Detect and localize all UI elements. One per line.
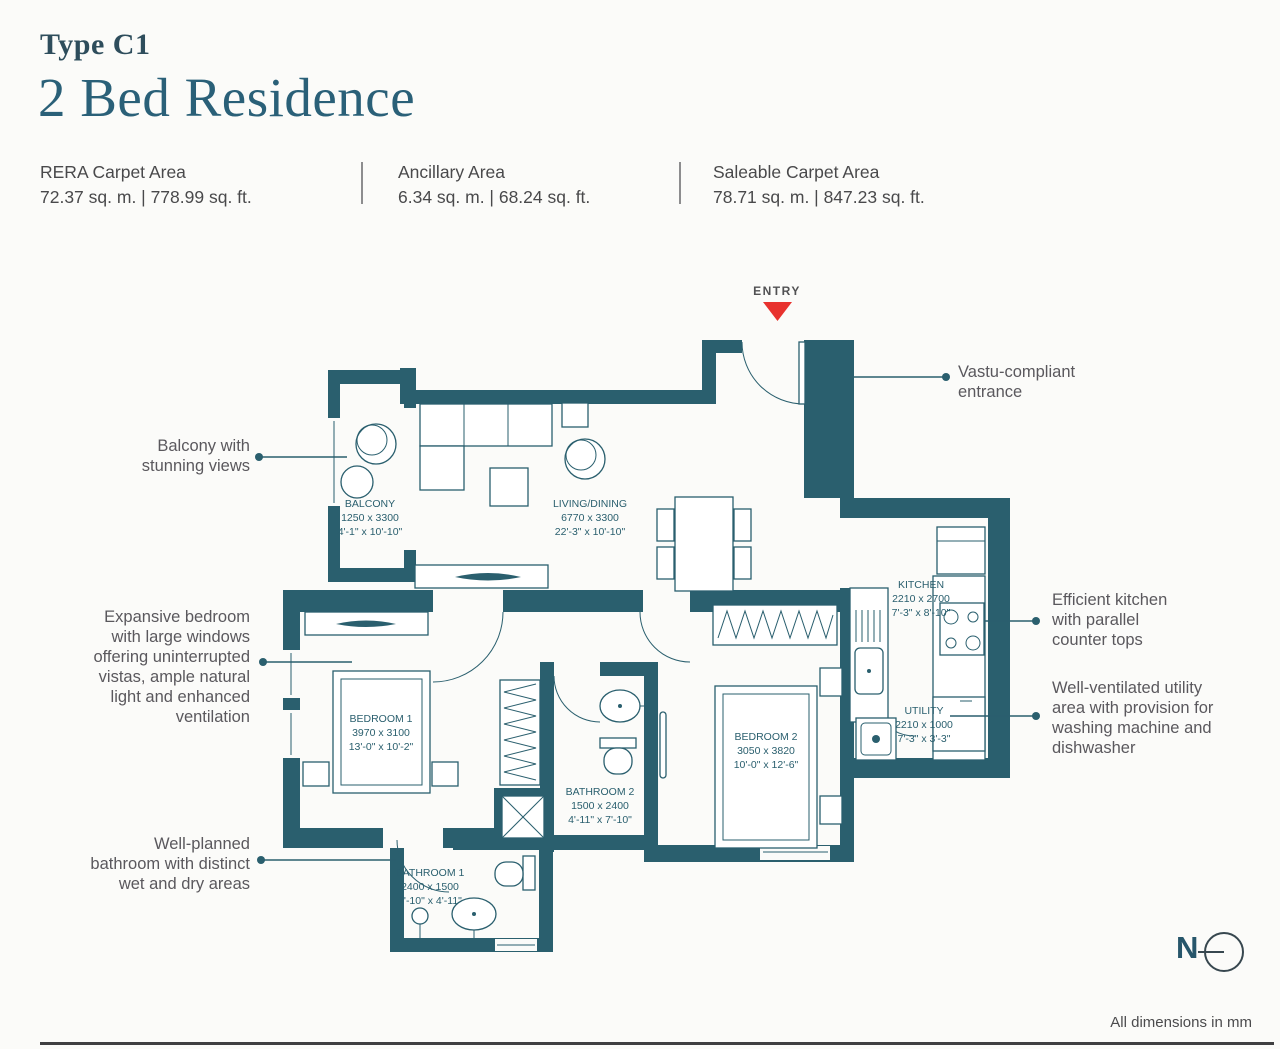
room-label-bathroom-1: BATHROOM 1 2400 x 1500 7'-10" x 4'-11" — [396, 866, 465, 908]
room-dim-mm: 6770 x 3300 — [553, 511, 627, 525]
page-title: 2 Bed Residence — [38, 66, 415, 129]
room-name: LIVING/DINING — [553, 497, 627, 511]
entry-arrow-icon — [763, 302, 792, 321]
north-label: N — [1176, 930, 1198, 966]
room-name: BEDROOM 2 — [734, 730, 799, 744]
stat-ancillary-area: Ancillary Area 6.34 sq. m. | 68.24 sq. f… — [398, 160, 590, 209]
bathroom2-fixtures — [600, 690, 648, 774]
stat-rera-carpet-area: RERA Carpet Area 72.37 sq. m. | 778.99 s… — [40, 160, 252, 209]
annotation-utility: Well-ventilated utility area with provis… — [1052, 678, 1213, 758]
room-name: UTILITY — [895, 704, 953, 718]
room-name: BALCONY — [338, 497, 403, 511]
balcony-table — [341, 466, 373, 498]
room-dim-mm: 2400 x 1500 — [396, 880, 465, 894]
tv-console-bedroom1 — [305, 612, 428, 635]
room-name: BATHROOM 2 — [566, 785, 635, 799]
room-label-bedroom-1: BEDROOM 1 3970 x 3100 13'-0" x 10'-2" — [349, 712, 414, 754]
room-dim-mm: 2210 x 2700 — [892, 592, 951, 606]
room-dim-mm: 3970 x 3100 — [349, 726, 414, 740]
room-name: BATHROOM 1 — [396, 866, 465, 880]
north-compass-icon — [1198, 933, 1243, 971]
stat-label: Saleable Carpet Area — [713, 160, 925, 184]
bottom-rule — [40, 1042, 1274, 1045]
annotation-balcony: Balcony with stunning views — [142, 436, 250, 476]
room-label-balcony: BALCONY 1250 x 3300 4'-1" x 10'-10" — [338, 497, 403, 539]
stat-value: 6.34 sq. m. | 68.24 sq. ft. — [398, 185, 590, 209]
annotation-entrance: Vastu-compliant entrance — [958, 362, 1075, 402]
room-label-bathroom-2: BATHROOM 2 1500 x 2400 4'-11" x 7'-10" — [566, 785, 635, 827]
room-dim-ft: 7'-10" x 4'-11" — [396, 894, 465, 908]
room-label-utility: UTILITY 2210 x 1000 7'-3" x 3'-3" — [895, 704, 953, 746]
sofa — [420, 404, 552, 490]
wardrobe-2 — [713, 605, 837, 645]
room-name: BEDROOM 1 — [349, 712, 414, 726]
room-dim-ft: 7'-3" x 3'-3" — [895, 732, 953, 746]
type-label: Type C1 — [40, 28, 150, 62]
room-name: KITCHEN — [892, 578, 951, 592]
dimensions-footnote: All dimensions in mm — [1110, 1014, 1252, 1031]
stat-saleable-carpet-area: Saleable Carpet Area 78.71 sq. m. | 847.… — [713, 160, 925, 209]
stat-value: 78.71 sq. m. | 847.23 sq. ft. — [713, 185, 925, 209]
annotation-kitchen: Efficient kitchen with parallel counter … — [1052, 590, 1167, 650]
room-dim-ft: 10'-0" x 12'-6" — [734, 758, 799, 772]
entry-label: ENTRY — [753, 284, 801, 298]
room-dim-mm: 2210 x 1000 — [895, 718, 953, 732]
stat-label: Ancillary Area — [398, 160, 590, 184]
room-dim-mm: 1500 x 2400 — [566, 799, 635, 813]
living-armchair — [565, 439, 605, 479]
room-label-bedroom-2: BEDROOM 2 3050 x 3820 10'-0" x 12'-6" — [734, 730, 799, 772]
stat-label: RERA Carpet Area — [40, 160, 252, 184]
room-dim-mm: 3050 x 3820 — [734, 744, 799, 758]
room-dim-ft: 13'-0" x 10'-2" — [349, 740, 414, 754]
coffee-table — [490, 468, 528, 506]
dining-set — [657, 497, 751, 591]
room-dim-mm: 1250 x 3300 — [338, 511, 403, 525]
room-dim-ft: 22'-3" x 10'-10" — [553, 525, 627, 539]
wardrobe-1 — [500, 680, 540, 785]
room-dim-ft: 4'-11" x 7'-10" — [566, 813, 635, 827]
stat-value: 72.37 sq. m. | 778.99 sq. ft. — [40, 185, 252, 209]
room-dim-ft: 4'-1" x 10'-10" — [338, 525, 403, 539]
room-label-kitchen: KITCHEN 2210 x 2700 7'-3" x 8'-10" — [892, 578, 951, 620]
shower-area — [502, 796, 544, 838]
room-dim-ft: 7'-3" x 8'-10" — [892, 606, 951, 620]
room-label-living-dining: LIVING/DINING 6770 x 3300 22'-3" x 10'-1… — [553, 497, 627, 539]
annotation-bathroom: Well-planned bathroom with distinct wet … — [90, 834, 250, 894]
tv-console-living — [415, 565, 548, 588]
side-table — [562, 403, 588, 427]
annotation-bedroom: Expansive bedroom with large windows off… — [93, 607, 250, 727]
floorplan-page: { "header": { "type_label": "Type C1", "… — [0, 0, 1280, 1049]
balcony-armchair — [356, 424, 396, 464]
